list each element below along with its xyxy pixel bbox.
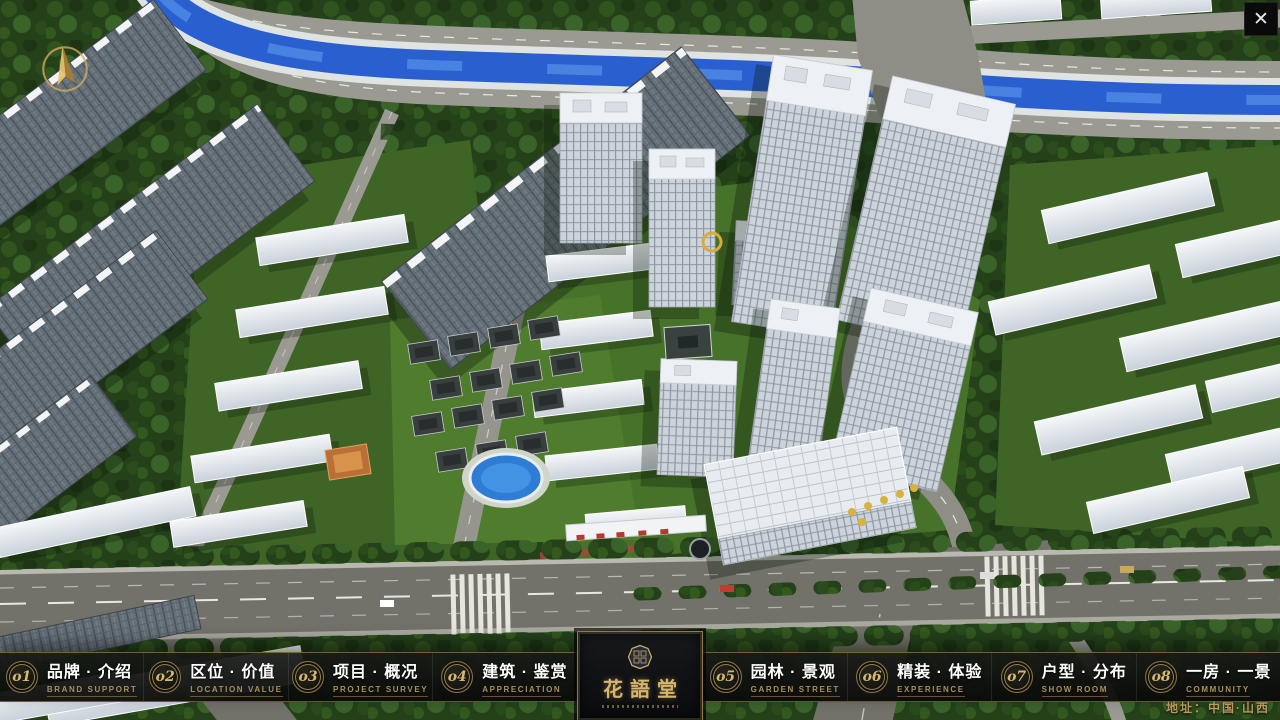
nav-number-badge: o6 (856, 661, 888, 693)
nav-number-badge: o7 (1001, 661, 1033, 693)
nav-item-garden-landscape[interactable]: o5 园林 · 景观GARDEN STREET (703, 653, 848, 701)
nav-label-en: APPRECIATION (482, 685, 561, 697)
nav-label-zh: 建筑 · 鉴赏 (482, 658, 567, 682)
nav-number-badge: o8 (1145, 661, 1177, 693)
presentation-window: ✕ o1 品牌 · 介绍BRAND SUPPORT o2 区位 · 价值LOCA… (0, 0, 1280, 720)
logo-title: 花語堂 (596, 673, 684, 702)
nav-label-en: LOCATION VALUE (190, 685, 282, 697)
gate-fountain (690, 539, 710, 559)
nav-label-zh: 户型 · 分布 (1042, 658, 1127, 682)
nav-number-badge: o5 (710, 661, 742, 693)
nav-label-en: SHOW ROOM (1042, 685, 1108, 697)
nav-label-en: PROJECT SURVEY (333, 685, 428, 697)
logo-subtitle-line (602, 705, 678, 708)
nav-number-badge: o1 (6, 661, 38, 693)
address-text: 地址：中国·山西 (1166, 699, 1270, 716)
community-center-orange (325, 444, 371, 480)
nav-item-location-value[interactable]: o2 区位 · 价值LOCATION VALUE (144, 653, 288, 701)
nav-item-floorplan-distribution[interactable]: o7 户型 · 分布SHOW ROOM (992, 653, 1137, 701)
nav-group-right: o5 园林 · 景观GARDEN STREET o6 精装 · 体验EXPERI… (703, 653, 1280, 701)
bottom-navbar: o1 品牌 · 介绍BRAND SUPPORT o2 区位 · 价值LOCATI… (0, 652, 1280, 702)
project-logo[interactable]: 花語堂 (577, 631, 703, 720)
nav-item-brand-intro[interactable]: o1 品牌 · 介绍BRAND SUPPORT (0, 653, 144, 701)
clubhouse (664, 324, 712, 359)
logo-seal-icon (627, 644, 653, 670)
nav-item-interior-experience[interactable]: o6 精装 · 体验EXPERIENCE (848, 653, 993, 701)
nav-label-zh: 区位 · 价值 (190, 658, 275, 682)
nav-group-left: o1 品牌 · 介绍BRAND SUPPORT o2 区位 · 价值LOCATI… (0, 653, 577, 701)
close-button[interactable]: ✕ (1244, 2, 1278, 36)
nav-label-en: BRAND SUPPORT (47, 685, 138, 697)
compass-north-icon (31, 35, 99, 103)
nav-label-zh: 精装 · 体验 (897, 658, 982, 682)
nav-label-zh: 品牌 · 介绍 (47, 658, 132, 682)
nav-label-en: COMMUNITY (1186, 685, 1250, 697)
nav-number-badge: o4 (441, 661, 473, 693)
nav-label-zh: 园林 · 景观 (751, 658, 836, 682)
masterplan-render[interactable] (0, 0, 1280, 720)
nav-number-badge: o3 (292, 661, 324, 693)
nav-item-room-view[interactable]: o8 一房 · 一景COMMUNITY (1137, 653, 1280, 701)
nav-label-zh: 一房 · 一景 (1186, 658, 1271, 682)
nav-label-en: GARDEN STREET (751, 685, 840, 697)
nav-label-en: EXPERIENCE (897, 685, 965, 697)
nav-label-zh: 项目 · 概况 (333, 658, 418, 682)
nav-item-project-overview[interactable]: o3 项目 · 概况PROJECT SURVEY (289, 653, 433, 701)
nav-number-badge: o2 (149, 661, 181, 693)
nav-item-architecture[interactable]: o4 建筑 · 鉴赏APPRECIATION (433, 653, 577, 701)
